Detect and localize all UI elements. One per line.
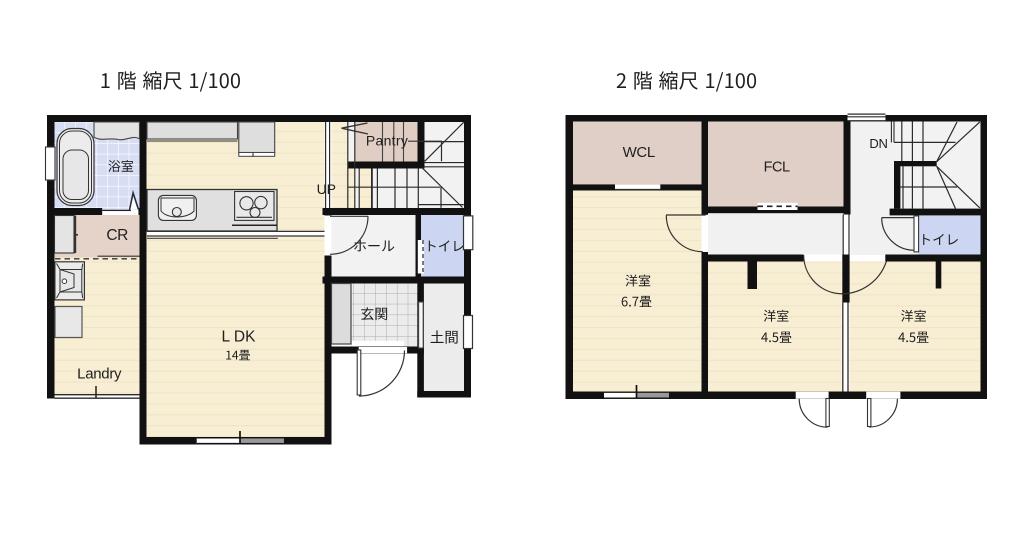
svg-text:CR: CR [106,227,128,244]
svg-text:Landry: Landry [77,366,122,383]
svg-text:WCL: WCL [623,144,655,161]
svg-text:DN: DN [869,136,887,151]
svg-text:UP: UP [317,181,336,197]
svg-text:Pantry: Pantry [366,133,408,149]
svg-text:L DK: L DK [222,329,257,346]
svg-text:FCL: FCL [764,160,790,176]
